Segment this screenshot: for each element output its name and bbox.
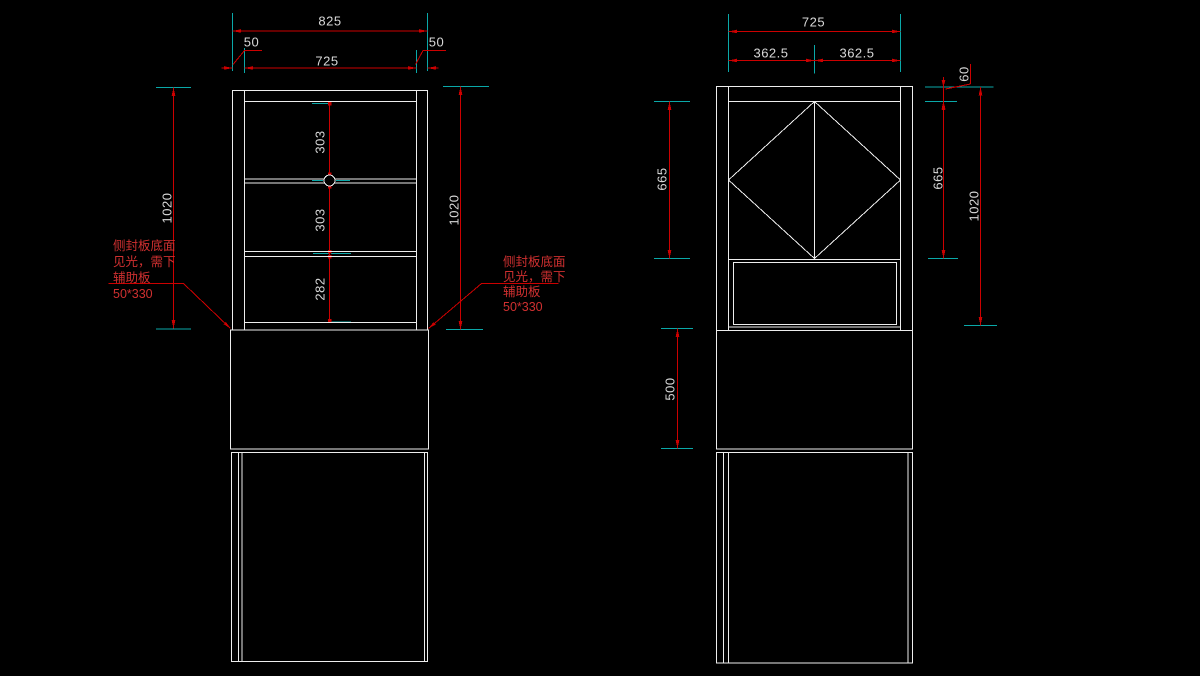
right-middle-box[interactable] [717,331,913,450]
right-lower-box[interactable] [717,453,913,664]
annotation-line: 50*330 [113,286,176,302]
dim-label-overall-height[interactable]: 1020 [966,191,981,222]
drawer-panel[interactable] [734,263,897,325]
dim-label-half-left[interactable]: 362.5 [753,45,788,60]
dim-label-overall-width[interactable]: 825 [318,13,341,28]
dimension-lines[interactable] [109,31,981,449]
dim-label-door-height-right[interactable]: 665 [931,166,946,189]
dim-label-section-bottom[interactable]: 282 [312,277,327,300]
dim-label-inner-width[interactable]: 725 [315,53,338,68]
annotation-line: 见光，需下 [113,254,176,270]
dim-label-middle-height[interactable]: 500 [663,377,678,400]
annotation-right[interactable]: 侧封板底面 见光，需下 辅助板 50*330 [503,255,566,315]
dim-label-side-left[interactable]: 50 [244,35,259,50]
cad-drawing-canvas[interactable]: 825 50 725 50 1020 1020 303 303 282 侧封板底… [0,0,1200,676]
right-view-cabinet[interactable] [717,87,913,664]
annotation-line: 50*330 [503,300,566,315]
left-view-cabinet[interactable] [231,91,429,662]
annotation-left[interactable]: 侧封板底面 见光，需下 辅助板 50*330 [113,238,176,302]
dim-label-half-right[interactable]: 362.5 [839,45,874,60]
dim-label-section-middle[interactable]: 303 [312,208,327,231]
annotation-line: 侧封板底面 [113,238,176,254]
left-lower-box[interactable] [232,453,428,662]
dim-label-inner-width-back[interactable]: 725 [802,14,825,29]
dim-label-height-right[interactable]: 1020 [447,194,462,225]
dimension-arrowheads [172,29,983,448]
left-middle-box[interactable] [231,330,429,449]
annotation-line: 见光，需下 [503,270,566,285]
dim-label-section-top[interactable]: 303 [312,130,327,153]
annotation-line: 辅助板 [503,285,566,300]
dim-label-top-rail[interactable]: 60 [956,66,971,81]
cad-geometry-layer[interactable] [0,0,1200,676]
annotation-line: 辅助板 [113,270,176,286]
dim-label-height-left[interactable]: 1020 [160,192,175,223]
dim-label-door-height-left[interactable]: 665 [654,167,669,190]
extension-lines [156,13,997,449]
shelf-pin-circle[interactable] [324,175,335,186]
annotation-line: 侧封板底面 [503,255,566,270]
dim-label-side-right[interactable]: 50 [429,35,444,50]
